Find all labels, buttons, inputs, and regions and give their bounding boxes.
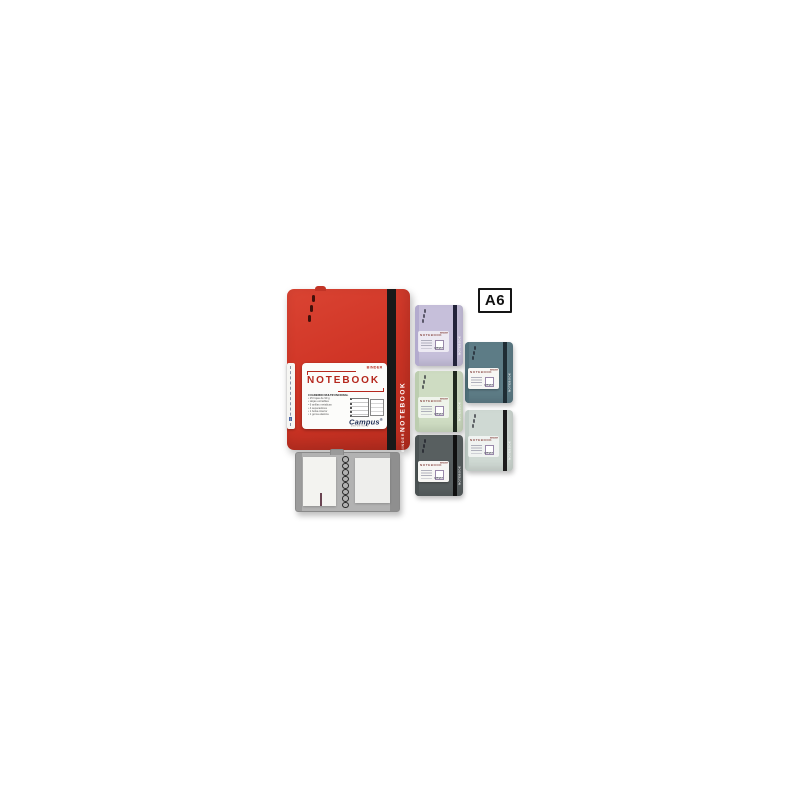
size-badge-text: A6 (485, 292, 505, 309)
cover-label: BINDER NOTEBOOK CUADERNO MULTIFUNCIONAL … (302, 363, 387, 429)
punch-hole (424, 439, 426, 443)
punch-hole (422, 385, 424, 389)
label-bracket-bottom (338, 388, 384, 392)
elastic-band (453, 435, 457, 496)
spine-notebook-text: NOTEBOOK (400, 382, 407, 432)
sheet-icon (370, 399, 384, 416)
product-photo: A6 BINDER NOTEBOOK BINDER NOTEBOOK CUADE… (0, 0, 800, 800)
mini-label-features-lines (471, 377, 482, 386)
mini-spine-text: NOTEBOOK (509, 448, 512, 460)
mini-cover-label: BINDER NOTEBOOK Campus (468, 368, 499, 389)
punch-hole (473, 351, 475, 355)
binder-rings (338, 455, 352, 509)
elastic-band (387, 289, 396, 450)
elastic-band (503, 410, 507, 471)
mini-brand-logo: Campus (484, 384, 493, 386)
label-title: NOTEBOOK (307, 375, 380, 386)
elastic-band (503, 342, 507, 403)
mini-label-title: NOTEBOOK (420, 400, 442, 403)
punch-hole (422, 449, 424, 453)
mini-label-title: NOTEBOOK (470, 371, 492, 374)
mini-notebook-sage: BINDER NOTEBOOK Campus NOTEBOOK (415, 371, 463, 432)
punch-hole (424, 309, 426, 313)
mini-spine-text: NOTEBOOK (459, 409, 462, 421)
elastic-band (453, 371, 457, 432)
punch-hole (474, 414, 476, 418)
binder-pen-mark (320, 493, 322, 506)
mini-spine-text: NOTEBOOK (459, 473, 462, 485)
mini-label-title: NOTEBOOK (420, 464, 442, 467)
open-binder (295, 452, 400, 512)
mini-brand-logo: Campus (434, 413, 443, 415)
mini-notebook-charcoal: BINDER NOTEBOOK Campus NOTEBOOK (415, 435, 463, 496)
label-features-list: • 25 hojas de 90 g• Hojas extraibles• 6 … (308, 397, 327, 416)
mini-cover-label: BINDER NOTEBOOK Campus (468, 436, 499, 457)
mini-cover-label: BINDER NOTEBOOK Campus (418, 331, 449, 352)
mini-label-features-lines (471, 445, 482, 454)
mini-label-title: NOTEBOOK (420, 334, 442, 337)
punch-hole (424, 375, 426, 379)
mini-cover-label: BINDER NOTEBOOK Campus (418, 397, 449, 418)
punch-hole (423, 314, 425, 318)
mini-notebook-lavender: BINDER NOTEBOOK Campus NOTEBOOK (415, 305, 463, 366)
label-binder-text: BINDER (367, 366, 383, 370)
punch-hole (472, 424, 474, 428)
mini-cover-label: BINDER NOTEBOOK Campus (418, 461, 449, 482)
spine-text: BINDER NOTEBOOK (396, 387, 410, 447)
mini-brand-logo: Campus (434, 477, 443, 479)
punch-hole (423, 380, 425, 384)
elastic-band (453, 305, 457, 366)
mini-label-features-lines (421, 340, 432, 349)
punch-hole (472, 356, 474, 360)
page-edge-strip (287, 363, 295, 429)
punch-hole (422, 319, 424, 323)
brand-sub-text: university (351, 425, 369, 427)
mini-label-features-lines (421, 406, 432, 415)
mini-label-title: NOTEBOOK (470, 439, 492, 442)
spine-binder-text: BINDER (401, 433, 405, 452)
mini-notebook-teal: BINDER NOTEBOOK Campus NOTEBOOK (465, 342, 513, 403)
punch-hole (423, 444, 425, 448)
mini-spine-text: NOTEBOOK (459, 343, 462, 355)
mini-label-features-lines (421, 470, 432, 479)
top-tab (315, 286, 326, 291)
punch-hole (308, 315, 311, 322)
label-features: CUADERNO MULTIFUNCIONAL • 25 hojas de 90… (308, 394, 350, 426)
red-notebook: BINDER NOTEBOOK BINDER NOTEBOOK CUADERNO… (287, 289, 410, 450)
punch-hole (474, 346, 476, 350)
binder-right-page (355, 458, 390, 503)
punch-hole (312, 295, 315, 302)
mini-brand-logo: Campus (484, 452, 493, 454)
mini-spine-text: NOTEBOOK (509, 380, 512, 392)
mini-brand-logo: Campus (434, 347, 443, 349)
punch-hole (473, 419, 475, 423)
binder-rings-icon (350, 398, 369, 417)
punch-hole (310, 305, 313, 312)
size-badge: A6 (478, 288, 512, 313)
mini-notebook-mint: BINDER NOTEBOOK Campus NOTEBOOK (465, 410, 513, 471)
page-strip-mark (289, 417, 292, 421)
